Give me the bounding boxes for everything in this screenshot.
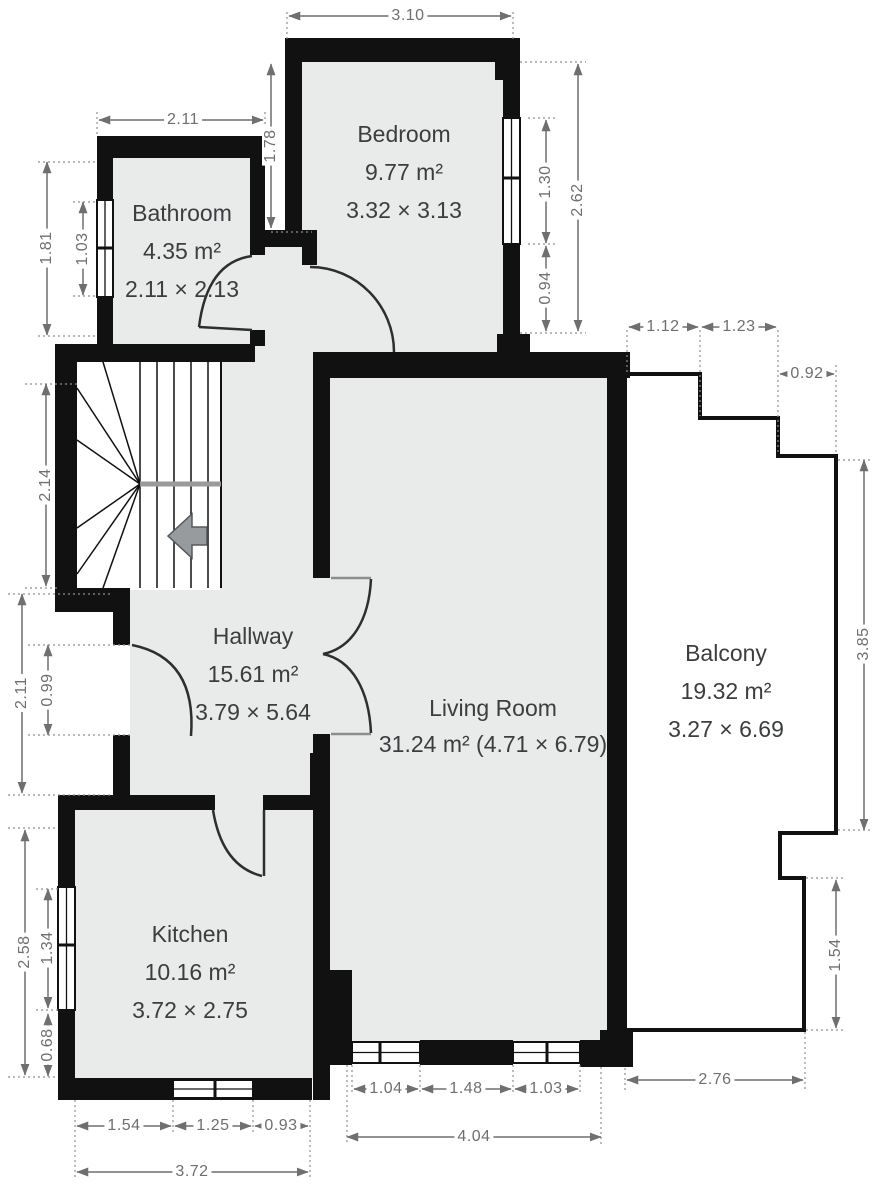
dim-living-wall-mid: 1.48 xyxy=(446,1080,485,1098)
kitchen-area: 10.16 m² xyxy=(132,953,248,991)
dim-balcony-step-3: 0.92 xyxy=(787,365,826,383)
balcony-name: Balcony xyxy=(668,634,784,672)
dim-kitchen-left-lower: 0.68 xyxy=(39,1025,57,1064)
dim-kitchen-bottom-seg1: 1.54 xyxy=(104,1117,143,1135)
living-room-name: Living Room xyxy=(379,690,607,726)
dim-bedroom-right-total: 2.62 xyxy=(569,180,587,219)
dim-kitchen-bottom-seg3: 0.93 xyxy=(261,1117,300,1135)
dim-kitchen-window-left: 1.34 xyxy=(39,928,57,967)
bathroom-area: 4.35 m² xyxy=(125,232,239,270)
hallway-size: 3.79 × 5.64 xyxy=(195,693,311,731)
dim-balcony-right-lower: 1.54 xyxy=(827,935,845,974)
living-room-label: Living Room 31.24 m² (4.71 × 6.79) xyxy=(379,690,607,762)
dim-bathroom-width-top: 2.11 xyxy=(164,111,202,129)
kitchen-side-window xyxy=(58,887,75,1010)
kitchen-label: Kitchen 10.16 m² 3.72 × 2.75 xyxy=(132,915,248,1029)
living-window-left xyxy=(352,1042,420,1063)
dim-bathroom-window-left: 1.03 xyxy=(74,229,92,268)
dim-entrance-door: 0.99 xyxy=(39,670,57,709)
balcony-size: 3.27 × 6.69 xyxy=(668,710,784,748)
dim-bedroom-window-right: 1.30 xyxy=(537,162,555,201)
living-room-area: 31.24 m² (4.71 × 6.79) xyxy=(379,726,607,762)
dim-balcony-step-1: 1.12 xyxy=(643,318,682,336)
dim-balcony-step-2: 1.23 xyxy=(719,318,758,336)
living-window-right xyxy=(513,1042,580,1063)
bedroom-name: Bedroom xyxy=(346,115,462,153)
dim-living-bottom-total: 4.04 xyxy=(454,1128,493,1146)
dim-kitchen-window-bottom: 1.25 xyxy=(193,1117,232,1135)
hallway-name: Hallway xyxy=(195,617,311,655)
kitchen-size: 3.72 × 2.75 xyxy=(132,991,248,1029)
kitchen-name: Kitchen xyxy=(132,915,248,953)
bedroom-size: 3.32 × 3.13 xyxy=(346,191,462,229)
bathroom-size: 2.11 × 2.13 xyxy=(125,270,239,308)
dim-balcony-right-upper: 3.85 xyxy=(855,624,873,663)
hallway-label: Hallway 15.61 m² 3.79 × 5.64 xyxy=(195,617,311,731)
dim-bedroom-left-wall: 1.78 xyxy=(262,126,280,165)
bathroom-window xyxy=(97,200,113,297)
dim-bedroom-width-top: 3.10 xyxy=(388,7,427,25)
dim-stairs-height: 2.14 xyxy=(37,465,55,504)
dim-bedroom-right-lower: 0.94 xyxy=(537,268,555,307)
dim-living-window-left: 1.04 xyxy=(366,1080,405,1098)
hallway-area: 15.61 m² xyxy=(195,655,311,693)
balcony-label: Balcony 19.32 m² 3.27 × 6.69 xyxy=(668,634,784,748)
dim-kitchen-bottom-total: 3.72 xyxy=(172,1163,211,1181)
balcony-area: 19.32 m² xyxy=(668,672,784,710)
floor-plan-canvas: Bathroom 4.35 m² 2.11 × 2.13 Bedroom 9.7… xyxy=(0,0,880,1195)
bathroom-name: Bathroom xyxy=(125,194,239,232)
dim-bathroom-left-total: 1.81 xyxy=(38,228,56,267)
staircase xyxy=(77,362,222,588)
dim-kitchen-left-total: 2.58 xyxy=(16,932,34,971)
bedroom-area: 9.77 m² xyxy=(346,153,462,191)
dim-balcony-bottom: 2.76 xyxy=(695,1071,734,1089)
bedroom-label: Bedroom 9.77 m² 3.32 × 3.13 xyxy=(346,115,462,229)
bedroom-window xyxy=(503,118,520,244)
kitchen-bottom-window xyxy=(173,1080,253,1098)
bathroom-label: Bathroom 4.35 m² 2.11 × 2.13 xyxy=(125,194,239,308)
dim-hallway-left-total: 2.11 xyxy=(13,674,31,712)
dim-living-window-right: 1.03 xyxy=(526,1080,565,1098)
